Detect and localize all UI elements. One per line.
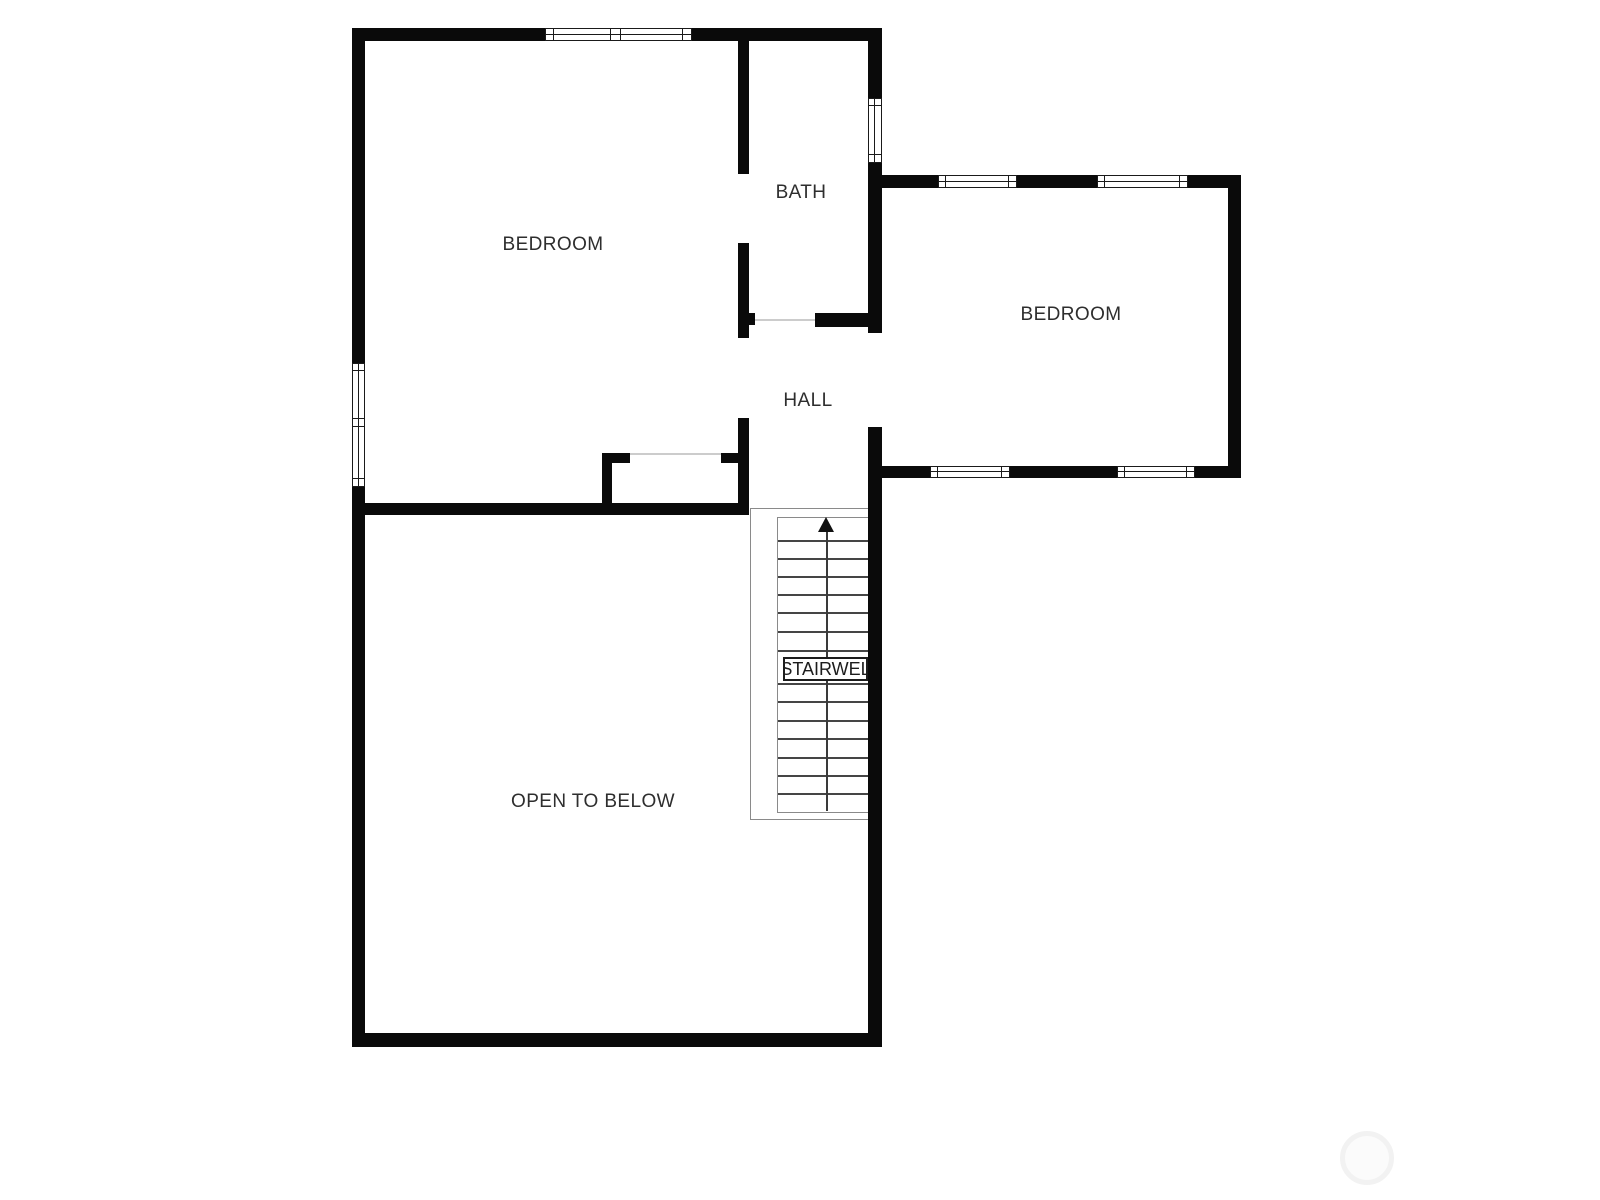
- window-glass-line: [358, 364, 359, 486]
- room-label-hall: HALL: [783, 390, 832, 412]
- window-mullion: [620, 29, 621, 40]
- window-mullion: [682, 29, 683, 40]
- wall-right-section-c: [868, 427, 882, 1047]
- stairs-up-arrow-icon: [818, 517, 834, 532]
- wall-divider-upper: [738, 41, 749, 174]
- wall-bath-bottom-stub: [738, 313, 755, 325]
- wall-bottom: [352, 1033, 882, 1047]
- window-mullion: [945, 176, 946, 187]
- wall-top-right: [692, 28, 882, 41]
- window-bedroom-right-top-2: [1097, 175, 1188, 188]
- window-mullion: [937, 467, 938, 477]
- stair-tread: [778, 683, 868, 685]
- window-glass-line: [546, 34, 691, 35]
- window-mullion: [1104, 176, 1105, 187]
- threshold-bath-door: [755, 319, 815, 321]
- window-bedroom-right-top-1: [938, 175, 1017, 188]
- stair-tread: [778, 650, 868, 652]
- stairwell-label-box: STAIRWEL: [783, 657, 868, 681]
- wall-closet-stub-left: [602, 453, 630, 463]
- window-mullion: [869, 154, 881, 155]
- window-mullion: [353, 478, 364, 479]
- window-mullion: [1008, 176, 1009, 187]
- stair-tread: [778, 612, 868, 614]
- stair-tread: [778, 738, 868, 740]
- window-mullion: [1186, 467, 1187, 477]
- window-mullion: [553, 29, 554, 40]
- stair-tread: [778, 594, 868, 596]
- window-glass-line: [874, 99, 875, 162]
- wall-left-upper: [352, 28, 365, 363]
- wall-right-section-b: [868, 163, 882, 333]
- wall-closet-stub-right: [721, 453, 749, 463]
- wall-bedroom-right-side: [1228, 175, 1241, 478]
- window-mullion: [353, 370, 364, 371]
- window-bedroom-right-bottom-2: [1117, 466, 1195, 478]
- room-label-bedroom-right: BEDROOM: [1021, 304, 1122, 326]
- wall-left-lower: [352, 487, 365, 1047]
- stair-tread: [778, 720, 868, 722]
- window-mullion: [869, 105, 881, 106]
- stair-tread: [778, 540, 868, 542]
- window-mullion: [1124, 467, 1125, 477]
- wall-bedroom-right-bottom-1: [882, 466, 930, 478]
- wall-top-left: [352, 28, 545, 41]
- threshold-closet-opening: [630, 453, 721, 455]
- stair-tread: [778, 631, 868, 633]
- wall-bedroom-bottom: [352, 503, 749, 515]
- stair-tread: [778, 793, 868, 795]
- wall-bedroom-right-bottom-3: [1195, 466, 1241, 478]
- floor-plan: STAIRWEL BEDROOM BATH BEDROOM HALL OPEN …: [0, 0, 1600, 1200]
- wall-bedroom-right-top-2: [1017, 175, 1097, 188]
- wall-divider-lower: [738, 418, 749, 515]
- window-glass-line: [931, 471, 1009, 472]
- room-label-stairwell: STAIRWEL: [783, 659, 868, 680]
- window-bedroom-right-bottom-1: [930, 466, 1010, 478]
- stair-tread: [778, 558, 868, 560]
- window-bath: [868, 98, 882, 163]
- wall-bedroom-right-bottom-2: [1010, 466, 1117, 478]
- room-label-bedroom-left: BEDROOM: [503, 234, 604, 256]
- room-label-open-to-below: OPEN TO BELOW: [511, 791, 675, 813]
- window-left-wall: [352, 363, 365, 487]
- stair-tread: [778, 775, 868, 777]
- window-glass-line: [939, 181, 1016, 182]
- window-top-wall: [545, 28, 692, 41]
- window-glass-line: [1118, 471, 1194, 472]
- stair-tread: [778, 757, 868, 759]
- window-mullion: [353, 418, 364, 419]
- wall-bedroom-right-top-1: [882, 175, 938, 188]
- window-glass-line: [1098, 181, 1187, 182]
- room-label-bath: BATH: [776, 182, 827, 204]
- window-mullion: [1179, 176, 1180, 187]
- window-mullion: [1001, 467, 1002, 477]
- window-mullion: [610, 29, 611, 40]
- stair-tread: [778, 701, 868, 703]
- window-mullion: [353, 426, 364, 427]
- stair-tread: [778, 576, 868, 578]
- watermark-circle: [1340, 1131, 1394, 1185]
- wall-right-section-a: [868, 41, 882, 98]
